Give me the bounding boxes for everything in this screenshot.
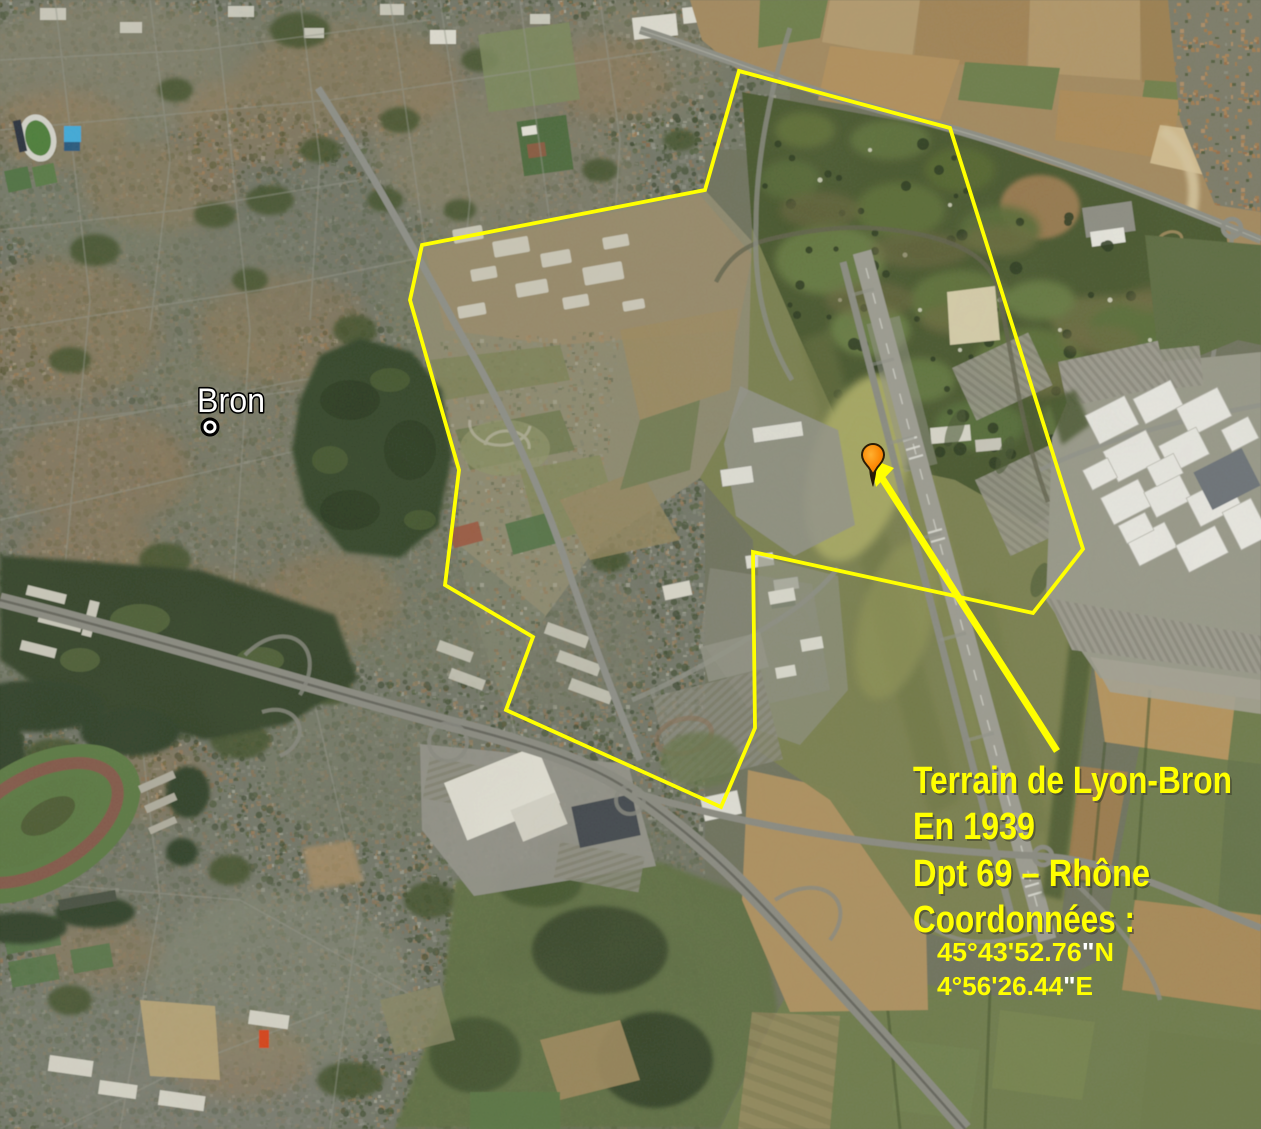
svg-text:Coordonnées :: Coordonnées : bbox=[913, 899, 1135, 941]
svg-text:Bron: Bron bbox=[197, 382, 265, 420]
svg-text:45°43'52.76"N: 45°43'52.76"N bbox=[937, 937, 1114, 967]
svg-text:Terrain de Lyon-Bron: Terrain de Lyon-Bron bbox=[913, 760, 1232, 802]
svg-text:En 1939: En 1939 bbox=[913, 806, 1035, 848]
svg-text:4°56'26.44"E: 4°56'26.44"E bbox=[937, 971, 1093, 1001]
svg-text:Dpt 69 – Rhône: Dpt 69 – Rhône bbox=[913, 853, 1150, 895]
